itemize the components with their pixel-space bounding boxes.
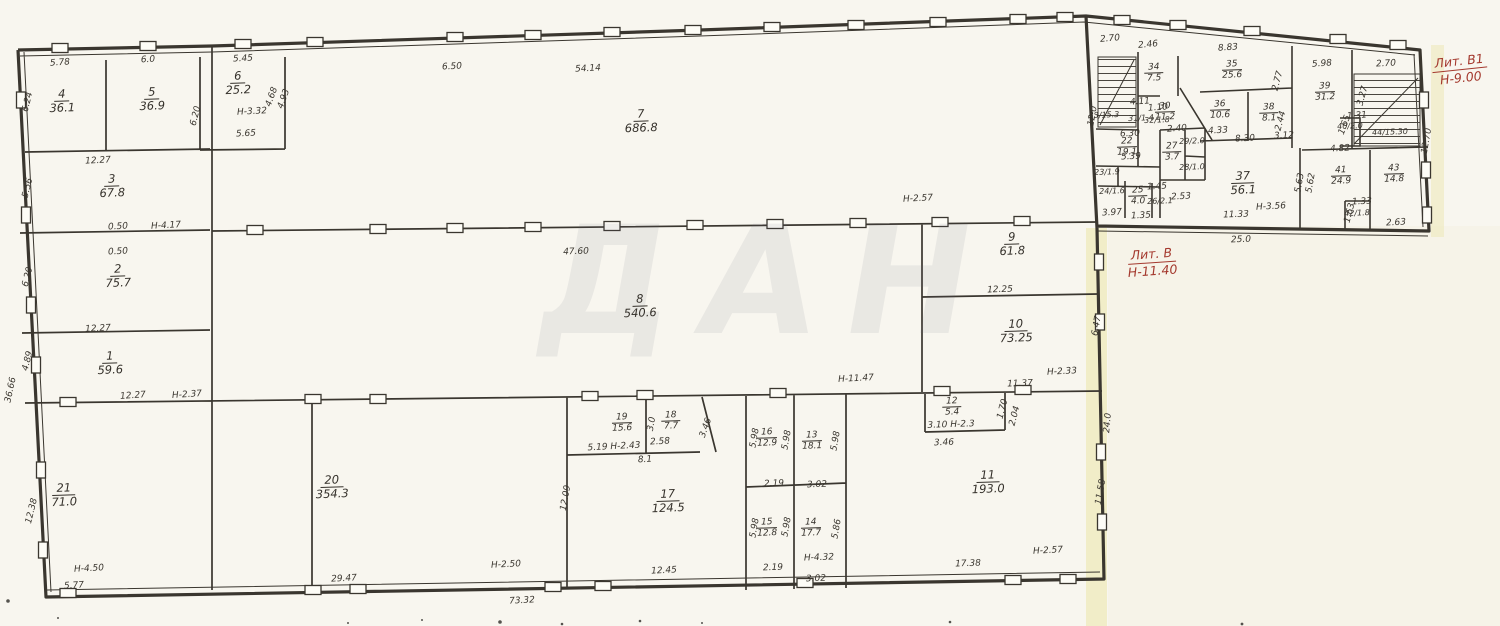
dimension-label: Н-2.50 [491,559,522,571]
window-pier-mark [52,44,68,53]
room-label-12: 125.4 [942,396,962,418]
dimension-label: Н-2.57 [903,193,934,205]
window-pier-mark [1330,35,1346,44]
scan-speckle [421,619,423,621]
window-pier-mark [235,40,251,49]
window-pier-mark [37,462,46,478]
dimension-label: Н-2.57 [1033,545,1064,557]
dimension-label: 12.27 [85,155,111,166]
room-label-7: 7686.8 [624,107,658,135]
window-pier-mark [930,18,946,27]
window-pier-mark [1014,217,1030,226]
window-pier-mark [1095,254,1104,270]
room-label-2: 275.7 [105,262,132,290]
room-label-26: 26/2.1 [1147,197,1173,207]
floorplan-scan: ДАН 159.6275.7367.8436.1536.9625.27686.8… [0,0,1500,626]
room-label-8: 8540.6 [623,292,657,320]
dimension-label: 5.65 [236,128,257,139]
room-label-35: 3525.6 [1222,59,1243,81]
dimension-label: 8.1 [638,455,653,466]
room-label-25: 254.0 [1128,185,1148,207]
room-label-39: 3931.2 [1315,81,1336,103]
dimension-label: 0.50 [108,246,129,257]
room-label-24: 24/1.6 [1099,187,1125,197]
dimension-label: 2.40 [1167,123,1188,134]
dimension-label: Н-4.50 [74,563,105,575]
window-pier-mark [1422,162,1431,178]
room-label-14: 1417.7 [801,517,822,539]
dimension-label: 3.97 [1102,207,1123,218]
dimension-label: Н-2.33 [1047,366,1078,378]
window-pier-mark [525,31,541,40]
window-pier-mark [39,542,48,558]
dimension-label: 3.02 [807,480,827,491]
room-label-3: 367.8 [99,172,126,200]
dimension-label: 3.12 [1274,130,1295,141]
scan-speckle [949,621,952,624]
dimension-label: Н-4.17 [151,220,182,232]
window-pier-mark [932,218,948,227]
room-label-17: 17124.5 [651,487,685,515]
window-pier-mark [770,389,786,398]
window-pier-mark [1114,16,1130,25]
dimension-label: 4.82 [1330,143,1351,154]
window-pier-mark [140,42,156,51]
room-label-5: 536.9 [139,85,166,113]
dimension-label: 47.60 [563,247,589,258]
dimension-label: 3.46 [934,438,954,449]
room-label-29: 29/2.0 [1179,137,1205,147]
window-pier-mark [595,582,611,591]
window-pier-mark [582,392,598,401]
dimension-label: 1.10 [1148,102,1169,113]
dimension-label: 1.45 [1147,181,1168,192]
window-pier-mark [685,26,701,35]
dimension-label: Н-2.37 [172,389,203,401]
window-pier-mark [767,220,783,229]
dimension-label: 73.32 [509,595,535,606]
window-pier-mark [447,33,463,42]
window-pier-mark [1060,575,1076,584]
window-pier-mark [934,387,950,396]
scan-speckle [6,599,10,603]
window-pier-mark [1097,444,1106,460]
dimension-label: 12.25 [987,285,1013,296]
window-pier-mark [545,583,561,592]
dimension-label: 2.19 [763,563,783,574]
window-pier-mark [604,28,620,37]
room-label-18: 187.7 [661,410,681,432]
room-label-20: 20354.3 [315,473,349,501]
room-label-9: 961.8 [999,230,1026,258]
window-pier-mark [22,207,31,223]
dimension-label: 4.33 [1208,125,1229,136]
scan-speckle [639,620,642,623]
window-pier-mark [637,391,653,400]
window-pier-mark [1423,207,1432,223]
window-pier-mark [1390,41,1406,50]
window-pier-mark [1057,13,1073,22]
window-pier-mark [350,585,366,594]
dimension-label: 2.46 [1138,39,1159,51]
window-pier-mark [370,225,386,234]
dimension-label: 11.33 [1223,210,1249,221]
window-pier-mark [370,395,386,404]
window-pier-mark [525,223,541,232]
dimension-label: 6.50 [442,61,463,72]
room-label-11: 11193.0 [971,468,1005,496]
room-label-13: 1318.1 [802,430,823,452]
dimension-label: 2.70 [1376,58,1397,69]
room-label-41: 4124.9 [1331,165,1352,187]
room-label-6: 625.2 [225,69,252,97]
dimension-label: 29.47 [331,573,357,584]
dimension-label: Н-4.32 [804,552,834,563]
dimension-label: 2.70 [1100,33,1121,45]
window-pier-mark [60,398,76,407]
dimension-label: Н-3.56 [1256,201,1287,213]
dimension-label: 12.27 [85,323,111,334]
dimension-label: 0.50 [108,221,129,232]
room-label-34: 347.5 [1144,62,1164,84]
dimension-label: 3.02 [806,574,826,585]
dimension-label: 24.0 [1102,413,1114,434]
dimension-label: 2.19 [764,479,784,490]
window-pier-mark [1420,92,1429,108]
dimension-label: 25.0 [1231,235,1251,246]
room-label-10: 1073.25 [999,317,1033,345]
room-label-19: 1915.6 [612,412,633,434]
room-label-36: 3610.6 [1210,99,1231,121]
dimension-label: 1.35 [1131,210,1152,221]
room-label-23: 23/1.9 [1094,168,1120,178]
dimension-label: 5.45 [233,53,254,64]
dimension-label: 5.39 [1121,151,1142,162]
scan-speckle [57,617,59,619]
window-pier-mark [307,38,323,47]
room-label-4: 436.1 [49,87,76,115]
dimension-label: 5.77 [64,580,85,591]
dimension-label: 6.0 [141,55,156,66]
dimension-label: 3.10 Н-2.3 [927,419,975,431]
dimension-label: 12.45 [651,565,677,576]
dimension-label: Н-11.47 [838,373,874,385]
window-pier-mark [447,224,463,233]
dimension-label: Н-3.32 [237,106,268,118]
window-pier-mark [604,222,620,231]
dimension-label: 2.53 [1171,191,1192,202]
window-pier-mark [1010,15,1026,24]
litera-annotation: Лит. В1Н-9.00 [1431,50,1489,89]
scan-speckle [701,622,703,624]
room-label-28: 28/1.0 [1179,163,1205,173]
window-pier-mark [1005,576,1021,585]
window-pier-mark [1170,21,1186,30]
dimension-label: 2.58 [650,436,671,447]
dimension-label: 17.38 [955,559,981,570]
window-pier-mark [850,219,866,228]
scan-speckle [1241,623,1244,626]
dimension-label: 6.30 [1120,128,1141,139]
window-pier-mark [247,226,263,235]
room-label-21: 2171.0 [51,481,78,509]
dimension-label: 8.30 [1235,133,1256,144]
dimension-label: 5.78 [50,57,71,68]
window-pier-mark [305,395,321,404]
window-pier-mark [305,586,321,595]
dimension-label: 5.98 [1312,58,1333,69]
dimension-label: 11.37 [1007,379,1033,390]
room-label-43: 4314.8 [1384,163,1405,185]
room-label-44: 44/15.30 [1372,128,1408,138]
window-pier-mark [764,23,780,32]
dimension-label: 8.83 [1218,42,1239,53]
scan-speckle [347,622,349,624]
window-pier-mark [687,221,703,230]
window-pier-mark [27,297,36,313]
litera-annotation: Лит. ВН-11.40 [1126,245,1178,282]
room-label-1: 159.6 [97,349,124,377]
scan-speckle [561,623,564,626]
scan-speckle [498,620,502,624]
room-label-37: 3756.1 [1230,169,1257,197]
window-pier-mark [1098,514,1107,530]
dimension-label: 12.27 [120,390,146,402]
dimension-label: 2.63 [1386,217,1407,228]
window-pier-mark [848,21,864,30]
dimension-label: 54.14 [575,63,601,74]
window-pier-mark [1244,27,1260,36]
